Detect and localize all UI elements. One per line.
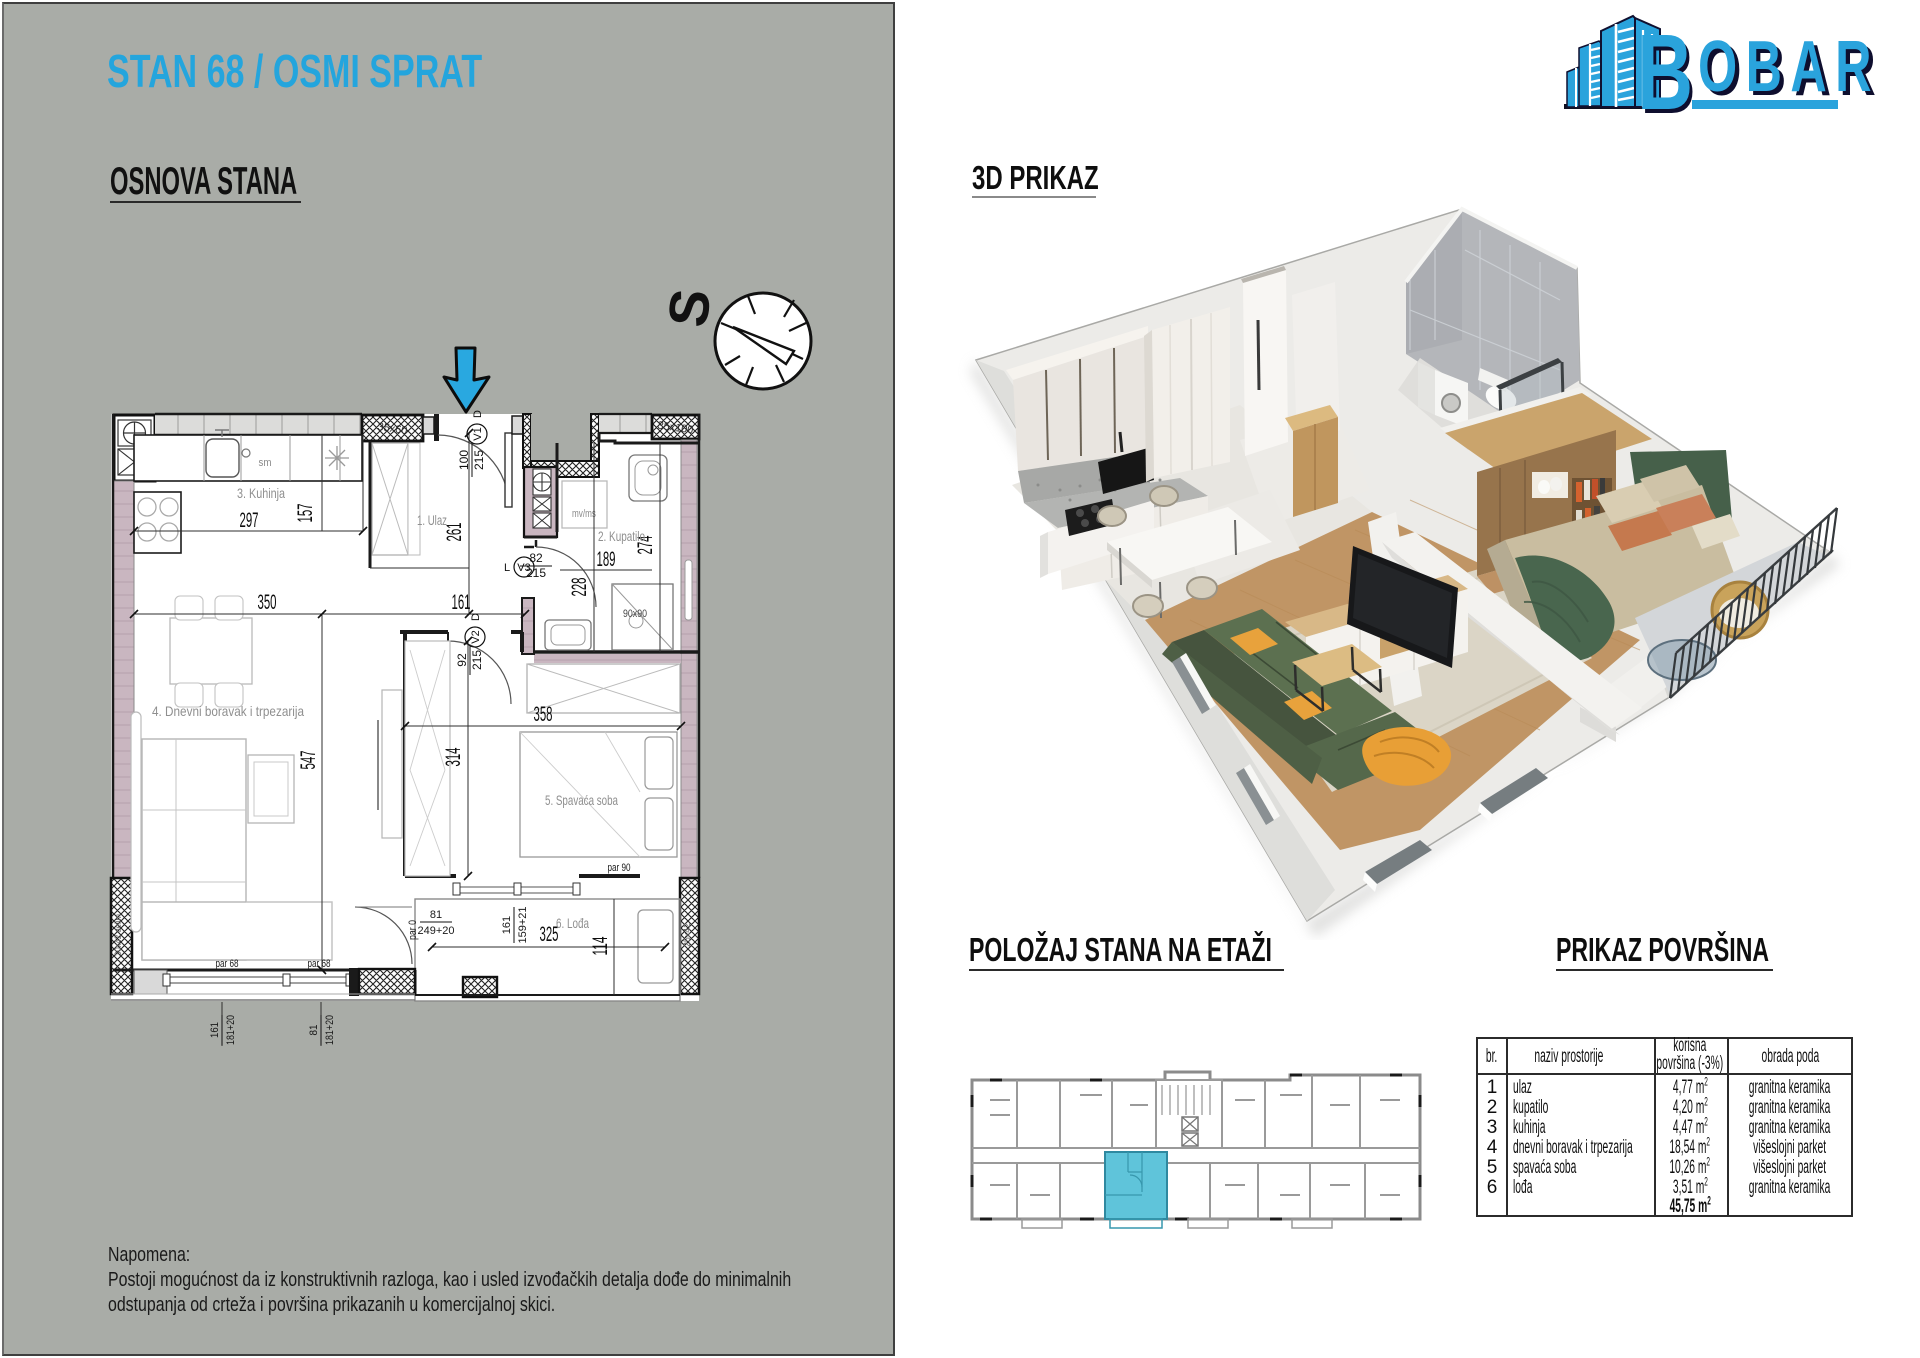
svg-text:159+21: 159+21	[517, 906, 529, 943]
svg-text:V2: V2	[470, 630, 482, 643]
svg-text:100: 100	[457, 450, 471, 470]
svg-text:547: 547	[297, 751, 320, 770]
svg-text:314: 314	[442, 747, 465, 766]
svg-text:D: D	[472, 410, 484, 418]
svg-text:1. Ulaz: 1. Ulaz	[417, 512, 447, 528]
svg-text:B: B	[1637, 11, 1693, 132]
svg-text:2. Kupatilo: 2. Kupatilo	[598, 528, 645, 544]
svg-text:5. Spavaća soba: 5. Spavaća soba	[545, 792, 618, 808]
svg-text:82: 82	[529, 551, 543, 565]
svg-text:161: 161	[501, 916, 513, 934]
svg-text:D: D	[470, 613, 482, 621]
svg-text:90x90: 90x90	[623, 608, 647, 620]
svg-text:215: 215	[470, 650, 484, 670]
svg-text:par 68: par 68	[216, 958, 239, 970]
svg-text:181+20: 181+20	[324, 1015, 336, 1045]
svg-text:249+20: 249+20	[417, 925, 454, 937]
svg-text:81: 81	[430, 909, 442, 921]
svg-text:V3: V3	[517, 562, 530, 574]
svg-text:215: 215	[472, 450, 486, 470]
svg-text:157: 157	[294, 504, 317, 523]
svg-text:L: L	[504, 562, 510, 574]
svg-text:161: 161	[452, 591, 471, 614]
svg-text:V1: V1	[472, 427, 484, 440]
svg-text:30x42 delim: 30x42 delim	[113, 914, 123, 956]
svg-text:3. Kuhinja: 3. Kuhinja	[237, 485, 285, 501]
svg-text:161: 161	[209, 1022, 221, 1038]
svg-text:mv/ms: mv/ms	[572, 508, 596, 520]
svg-text:81: 81	[308, 1025, 320, 1036]
svg-text:sm: sm	[259, 457, 272, 469]
svg-text:228: 228	[568, 578, 591, 597]
svg-text:297: 297	[240, 509, 259, 532]
svg-text:OBAR: OBAR	[1698, 27, 1880, 107]
svg-text:6. Lođa: 6. Lođa	[556, 915, 589, 931]
svg-text:par 68: par 68	[308, 958, 331, 970]
svg-text:181+20: 181+20	[225, 1015, 237, 1045]
svg-text:4. Dnevni boravak i trpezarija: 4. Dnevni boravak i trpezarija	[152, 703, 304, 719]
svg-text:25x42: 25x42	[682, 923, 692, 947]
svg-text:189: 189	[597, 548, 616, 571]
svg-text:350: 350	[258, 591, 277, 614]
svg-text:par 90: par 90	[608, 862, 631, 874]
svg-text:114: 114	[589, 936, 612, 955]
svg-text:S: S	[655, 286, 722, 331]
svg-text:358: 358	[534, 703, 553, 726]
svg-text:92: 92	[455, 653, 469, 667]
